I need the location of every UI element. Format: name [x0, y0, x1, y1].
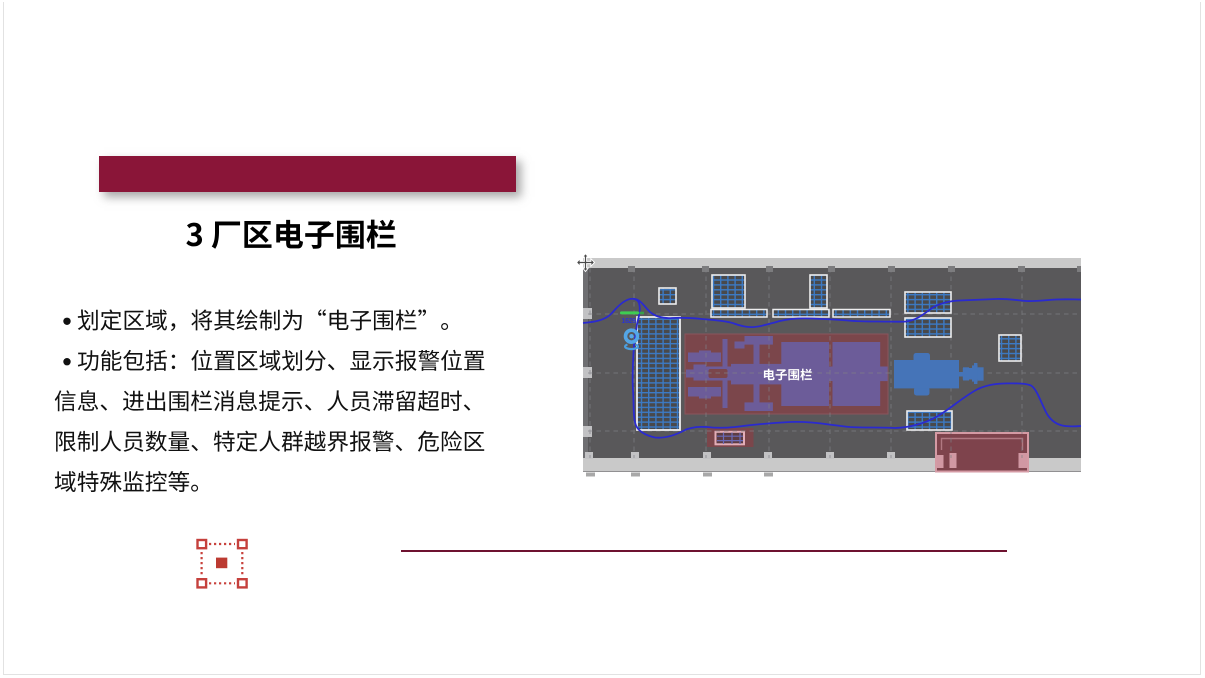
svg-text:1626: 1626 [622, 318, 637, 325]
